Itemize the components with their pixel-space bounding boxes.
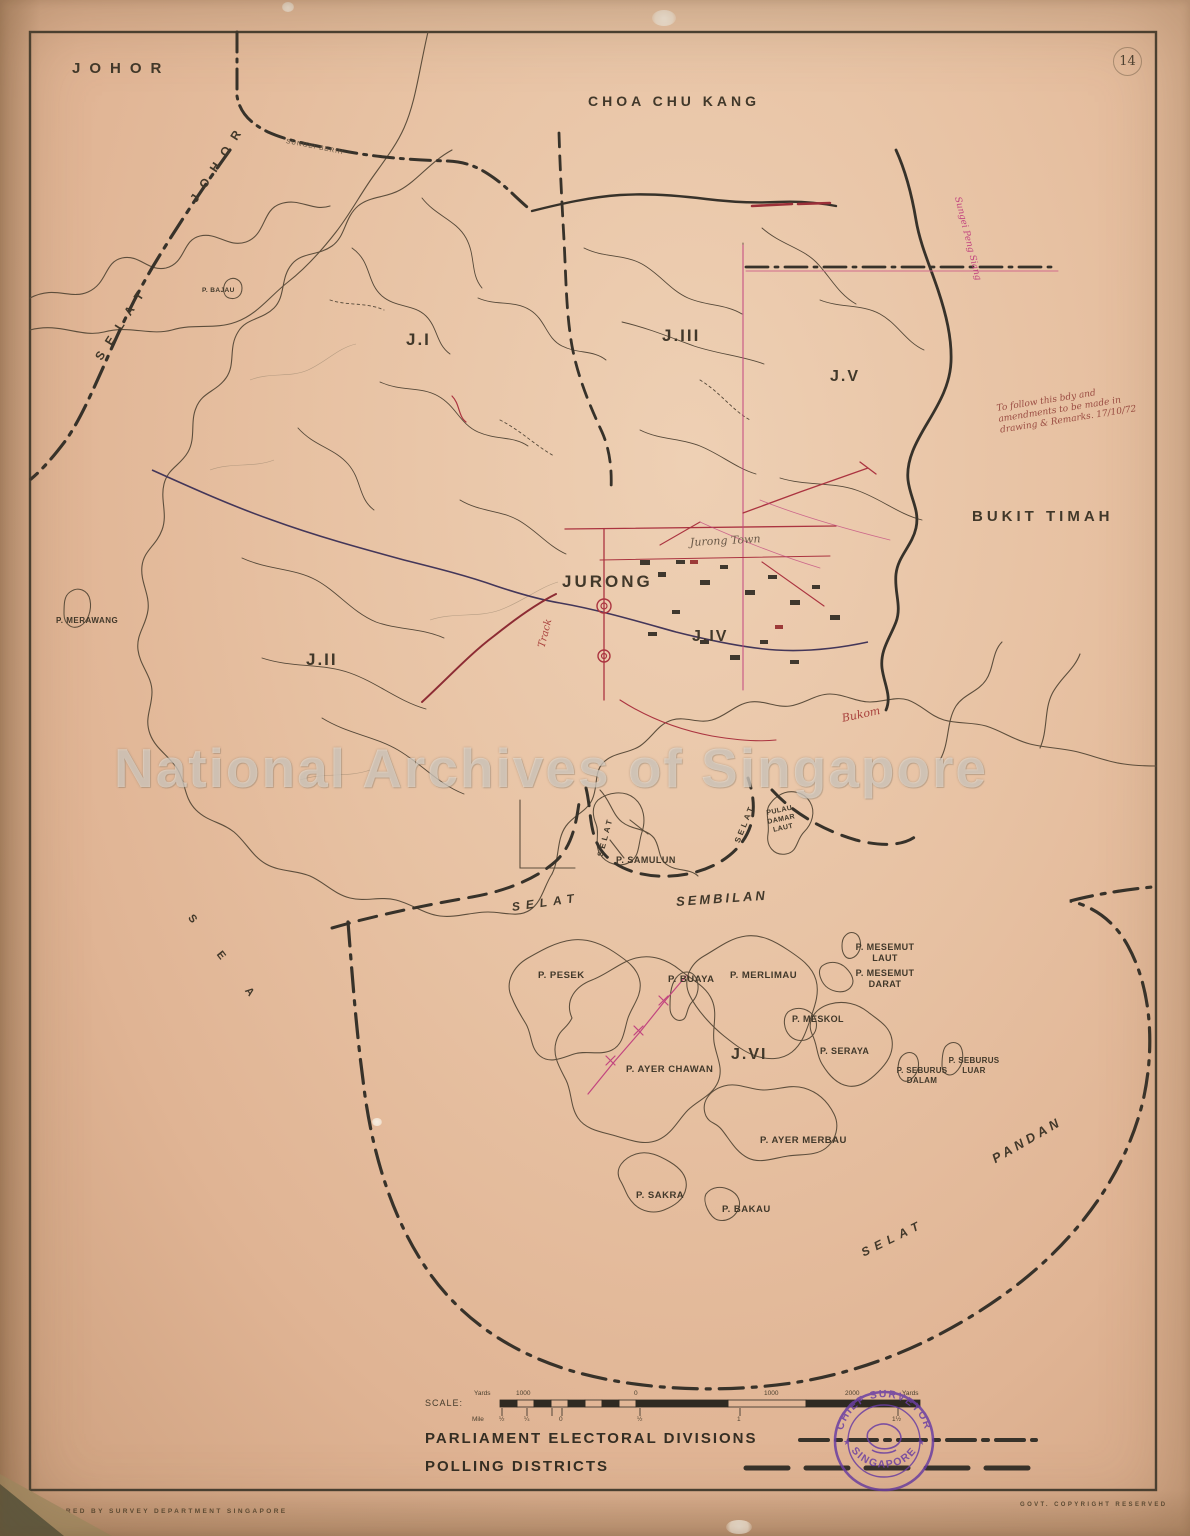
red-overlays: [422, 203, 1058, 1094]
footer-copyright: GOVT. COPYRIGHT RESERVED: [1020, 1502, 1168, 1508]
scale-yards-1000-right: 1000: [764, 1390, 778, 1397]
paper-stain: [726, 1520, 752, 1534]
stamp-star-right: ★: [917, 1437, 925, 1447]
scale-yards-zero: 0: [634, 1390, 638, 1397]
road-network: [242, 198, 924, 794]
region-label-bukit-timah: BUKIT TIMAH: [972, 508, 1114, 525]
scale-yards-unit-left: Yards: [474, 1390, 491, 1397]
island-label-samulun: P. SAMULUN: [616, 855, 676, 865]
district-label-j2: J.II: [306, 650, 338, 670]
island-label-ayer-merbau: P. AYER MERBAU: [760, 1135, 847, 1146]
paper-stain: [652, 10, 676, 26]
legend-polling-label: POLLING DISTRICTS: [425, 1458, 609, 1475]
region-label-johor: JOHOR: [72, 60, 170, 77]
region-label-jurong: JURONG: [562, 572, 653, 592]
island-label-pesek: P. PESEK: [538, 970, 585, 981]
scale-mile-unit: Mile: [472, 1416, 484, 1423]
island-label-buaya: P. BUAYA: [668, 974, 714, 985]
electoral-division-boundaries: [31, 32, 1152, 1389]
island-label-mesemut-darat: P. MESEMUT DARAT: [846, 968, 924, 991]
scale-mile-half-right: ½: [637, 1416, 642, 1423]
district-label-j3: J.III: [662, 326, 700, 346]
island-label-seburus-luar: P. SEBURUS LUAR: [948, 1056, 1000, 1076]
paper-stain: [372, 1118, 382, 1126]
island-label-sakra: P. SAKRA: [636, 1190, 684, 1201]
island-label-bakau: P. BAKAU: [722, 1204, 771, 1215]
district-label-j4: J.IV: [692, 628, 728, 646]
polling-district-boundaries: [332, 133, 916, 928]
sheet-number-value: 14: [1119, 54, 1136, 69]
scale-mile-zero: 0: [559, 1416, 563, 1423]
scale-mile-one: 1: [737, 1416, 741, 1423]
scale-yards-unit-right: Yards: [902, 1390, 919, 1397]
scale-yards-1000-left: 1000: [516, 1390, 530, 1397]
scale-label: SCALE:: [425, 1398, 463, 1408]
paper-stain: [282, 2, 294, 12]
island-label-merawang: P. MERAWANG: [56, 616, 118, 625]
scale-mile-quarter: ¼: [524, 1416, 529, 1423]
legend-parliament-label: PARLIAMENT ELECTORAL DIVISIONS: [425, 1430, 758, 1447]
district-label-j5: J.V: [830, 368, 860, 386]
island-label-meskol: P. MESKOL: [792, 1014, 844, 1024]
town-blocks: [640, 560, 840, 664]
island-label-merlimau: P. MERLIMAU: [730, 970, 797, 981]
island-label-bajau: P. BAJAU: [202, 287, 235, 294]
map-canvas: CHIEF SURVEYOR SINGAPORE ★ ★ JOHOR CHOA …: [0, 0, 1190, 1536]
district-label-j1: J.I: [406, 330, 431, 350]
scale-yards-2000: 2000: [845, 1390, 859, 1397]
district-label-j6: J.VI: [731, 1046, 767, 1064]
scale-mile-one-half: 1½: [892, 1416, 901, 1423]
sheet-number: 14: [1113, 47, 1142, 76]
island-label-mesemut-laut: P. MESEMUT LAUT: [846, 942, 924, 965]
island-label-ayer-chawan: P. AYER CHAWAN: [626, 1064, 713, 1075]
region-label-choa-chu-kang: CHOA CHU KANG: [588, 93, 760, 109]
island-label-seraya: P. SERAYA: [820, 1046, 869, 1056]
scale-mile-half-left: ½: [499, 1416, 504, 1423]
island-label-seburus-dalam: P. SEBURUS DALAM: [896, 1066, 948, 1086]
stamp-star-left: ★: [843, 1437, 851, 1447]
archives-watermark: National Archives of Singapore: [114, 736, 988, 800]
contour-lines: [210, 344, 558, 780]
